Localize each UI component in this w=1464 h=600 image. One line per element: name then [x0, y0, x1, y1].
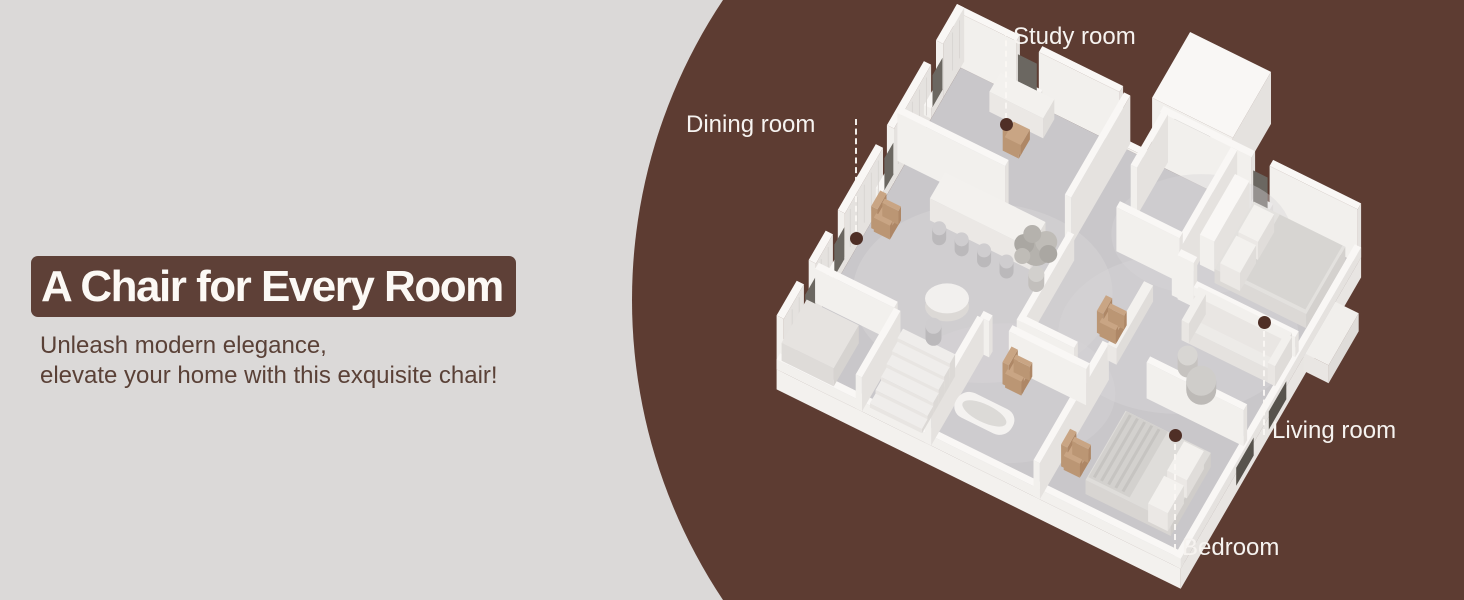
- subtitle-line-2: elevate your home with this exquisite ch…: [40, 361, 498, 391]
- leader-line-bedroom: [1174, 444, 1176, 550]
- label-dining-room: Dining room: [686, 111, 815, 139]
- headline-bar: A Chair for Every Room: [31, 256, 516, 317]
- subtitle-line-1: Unleash modern elegance,: [40, 331, 498, 361]
- label-study-room: Study room: [1013, 23, 1136, 51]
- marker-dot-study: [1000, 118, 1013, 131]
- headline-title: A Chair for Every Room: [41, 262, 503, 312]
- leader-line-study: [1005, 30, 1007, 119]
- leader-line-living: [1263, 331, 1265, 435]
- label-bedroom: Bedroom: [1182, 534, 1279, 562]
- marker-dot-dining: [850, 232, 863, 245]
- label-living-room: Living room: [1272, 417, 1396, 445]
- marker-dot-living: [1258, 316, 1271, 329]
- marker-dot-bedroom: [1169, 429, 1182, 442]
- headline-subtitle: Unleash modern elegance, elevate your ho…: [40, 331, 498, 391]
- leader-line-dining: [855, 119, 857, 231]
- hero-banner: A Chair for Every Room Unleash modern el…: [0, 0, 1464, 600]
